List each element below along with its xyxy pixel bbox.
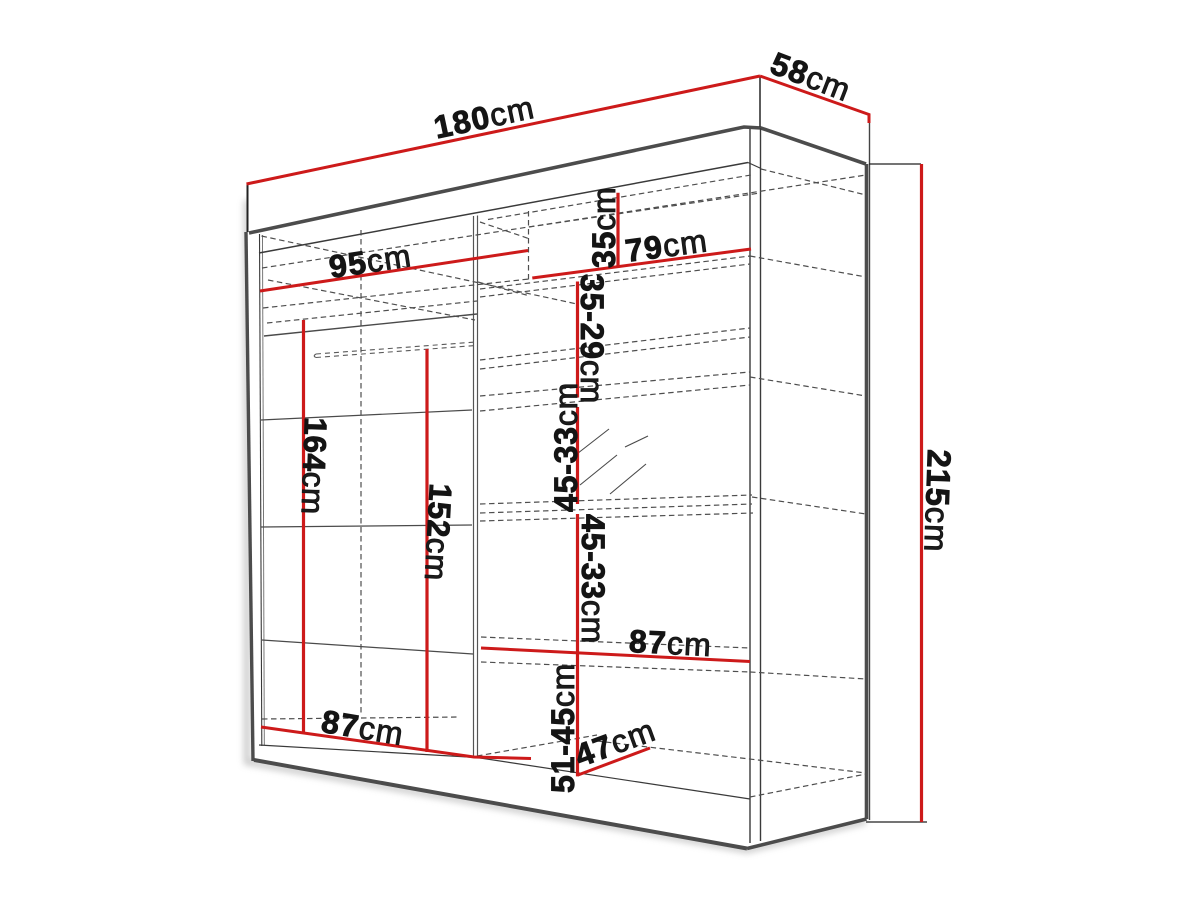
svg-text:87cm: 87cm (628, 623, 713, 663)
svg-text:45-33cm: 45-33cm (548, 382, 584, 512)
svg-text:35cm: 35cm (586, 187, 622, 268)
svg-text:152cm: 152cm (418, 483, 459, 582)
svg-text:164cm: 164cm (295, 417, 334, 516)
svg-text:215cm: 215cm (917, 449, 958, 553)
svg-text:51-45cm: 51-45cm (545, 663, 581, 793)
svg-text:45-33cm: 45-33cm (575, 514, 611, 644)
